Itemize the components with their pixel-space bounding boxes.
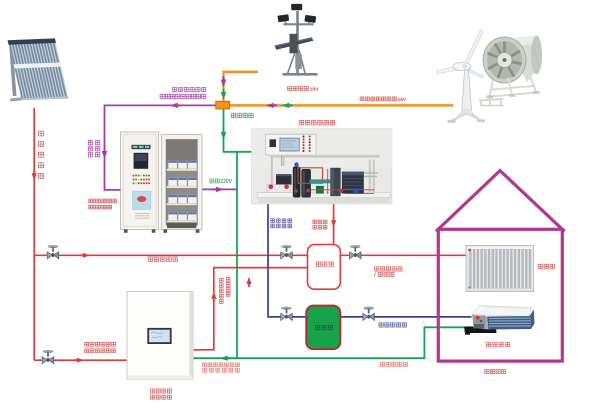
svg-text:220V: 220V [220,179,232,185]
svg-text:18V: 18V [310,87,319,93]
svg-text:18V: 18V [398,97,407,103]
